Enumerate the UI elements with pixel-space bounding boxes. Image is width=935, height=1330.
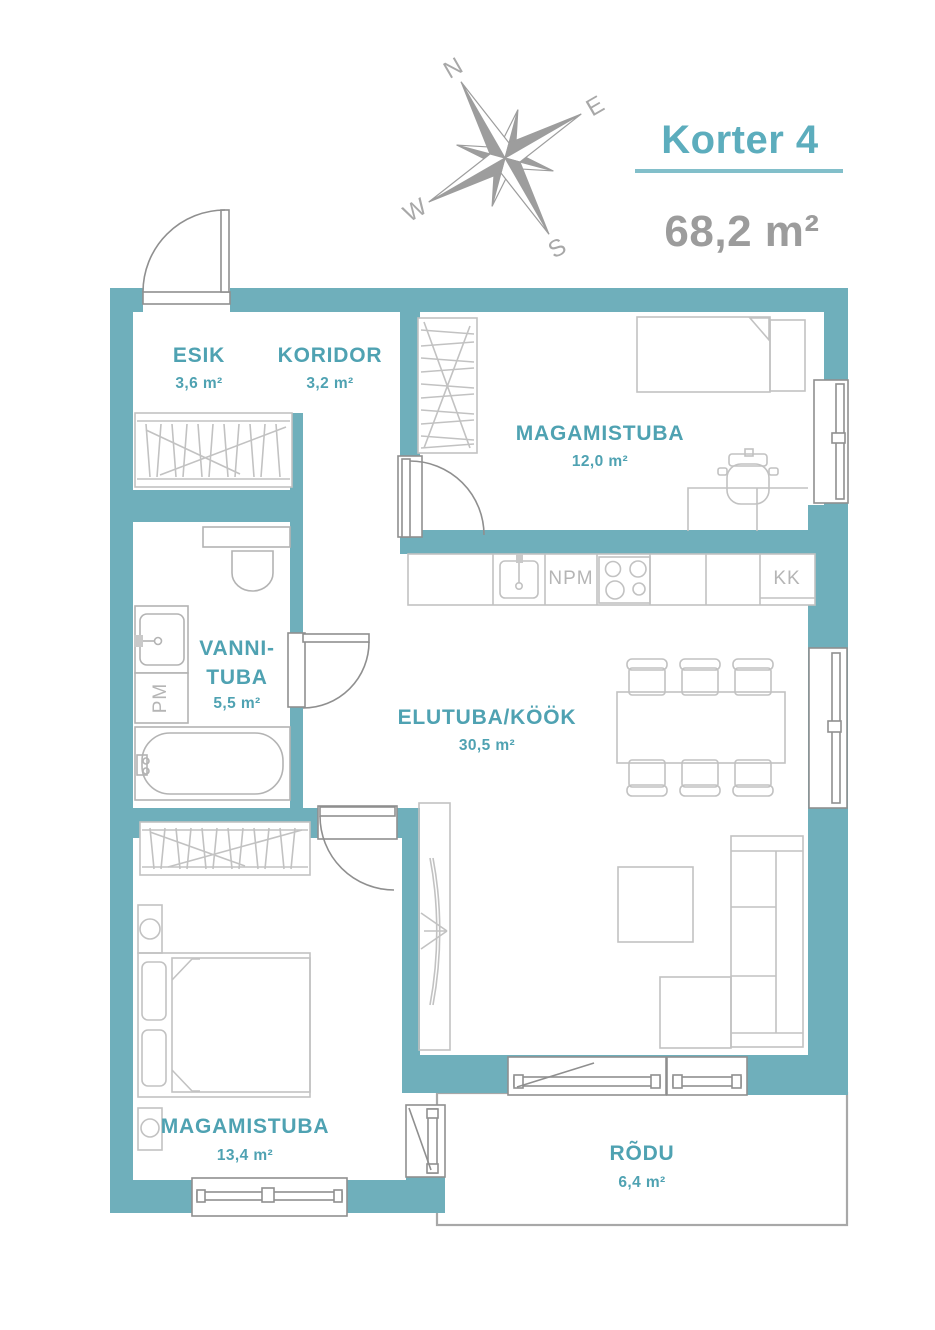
- window-end-cap: [732, 1075, 741, 1088]
- door-gap: [288, 633, 305, 707]
- tv-stand: [421, 913, 447, 949]
- chair-seat: [682, 668, 718, 695]
- hallway-wardrobe-icon: [135, 413, 292, 487]
- bed-mattress: [172, 958, 310, 1092]
- chair-icon: [733, 659, 773, 695]
- compass-label-s: S: [544, 233, 571, 264]
- window-end-cap: [197, 1190, 205, 1202]
- wall-top-main: [230, 288, 848, 312]
- window-living-icon: [809, 648, 847, 808]
- window-latch: [828, 721, 841, 732]
- kitchen-counter: NPM KK: [408, 554, 815, 605]
- toilet-cistern: [203, 527, 290, 547]
- room-area: 3,2 m²: [306, 375, 353, 392]
- dining-chairs: [627, 659, 773, 796]
- sink-tap-base: [134, 635, 143, 647]
- room-area: 6,4 m²: [618, 1174, 665, 1191]
- room-name: ESIK: [173, 344, 225, 367]
- coffee-table-outline: [618, 867, 693, 942]
- toilet-icon: [203, 527, 290, 591]
- chair-icon: [680, 760, 720, 796]
- window-bedroom2-icon: [192, 1178, 347, 1216]
- sofa-cushion-lines: [731, 851, 803, 1033]
- room-area: 30,5 m²: [459, 737, 515, 754]
- total-area: 68,2 m²: [664, 207, 819, 256]
- tv-bench: [419, 803, 450, 1050]
- door-swing-arc: [303, 642, 369, 708]
- single-bed-icon: [637, 317, 805, 392]
- chair-seat: [735, 668, 771, 695]
- bathtub-icon: [135, 727, 290, 800]
- double-bed-icon: [138, 953, 310, 1097]
- bed-pillow: [142, 962, 166, 1020]
- balcony-glazing-left-icon: [508, 1057, 666, 1095]
- header: Korter 4 68,2 m²: [635, 118, 843, 256]
- room-label-koridor: KORIDOR 3,2 m²: [278, 344, 383, 392]
- wall-bedroom1-left-upper: [400, 312, 420, 458]
- room-label-esik: ESIK 3,6 m²: [173, 344, 225, 392]
- room-name: MAGAMISTUBA: [161, 1115, 330, 1138]
- chair-seat: [735, 760, 771, 787]
- bed-fold-corner: [172, 1070, 200, 1091]
- room-name: MAGAMISTUBA: [516, 422, 685, 445]
- chair-armrest: [718, 468, 727, 475]
- dishwasher-label: NPM: [548, 568, 593, 589]
- chair-seat: [727, 464, 769, 504]
- balcony-glazing-right-icon: [667, 1057, 747, 1095]
- bathtub-inner: [142, 733, 283, 794]
- room-area: 3,6 m²: [175, 375, 222, 392]
- wall-left: [110, 288, 133, 1213]
- room-area: 5,5 m²: [213, 695, 260, 712]
- chair-armrest: [769, 468, 778, 475]
- room-name: KORIDOR: [278, 344, 383, 367]
- sofa-chaise: [660, 977, 731, 1048]
- balcony-side-door-icon: [406, 1105, 445, 1177]
- tv-unit-icon: [419, 803, 450, 1050]
- room-area: 13,4 m²: [217, 1147, 273, 1164]
- door-leaf: [303, 634, 369, 642]
- dining-table-icon: [617, 692, 785, 763]
- chair-icon: [627, 659, 667, 695]
- window-frame: [508, 1057, 666, 1095]
- desk-chair-icon: [718, 449, 778, 504]
- bed-headboard: [770, 320, 805, 391]
- chair-icon: [733, 760, 773, 796]
- chair-seat: [629, 668, 665, 695]
- bed-pillow: [142, 1030, 166, 1086]
- window-latch: [262, 1188, 274, 1202]
- apartment-title: Korter 4: [661, 118, 819, 162]
- bed-outline: [138, 953, 310, 1097]
- bathroom-sink-icon: [134, 606, 188, 673]
- room-label-vannituba: VANNI- TUBA 5,5 m²: [199, 637, 275, 712]
- compass-rose-icon: N E S W: [347, 1, 661, 318]
- chair-seat: [629, 760, 665, 787]
- bedroom2-furniture: [138, 822, 310, 1150]
- coffee-table-icon: [618, 867, 693, 942]
- toilet-bowl: [232, 551, 273, 591]
- desk-outline: [688, 488, 808, 531]
- door-swing-arc: [143, 210, 225, 292]
- chair-seat: [682, 760, 718, 787]
- entry-door-icon: [143, 210, 230, 304]
- nightstand-lamp: [141, 1119, 159, 1137]
- room-label-magamistuba1: MAGAMISTUBA 12,0 m²: [516, 422, 685, 470]
- nightstand-lamp: [140, 919, 160, 939]
- wall-bedroom1-left-lower: [400, 535, 420, 554]
- bed-fold-corner: [172, 959, 200, 980]
- bed-outline: [637, 317, 770, 392]
- room-name: RÕDU: [609, 1141, 674, 1165]
- wall-bathroom-right-lower: [290, 707, 303, 808]
- wardrobe-icon: [140, 822, 310, 875]
- bedroom2-door-icon: [318, 806, 397, 890]
- wall-bedroom2-right: [402, 838, 420, 1055]
- nightstand-icon: [138, 905, 162, 953]
- room-area: 12,0 m²: [572, 453, 628, 470]
- wardrobe-icon: [418, 318, 477, 453]
- bathroom-door-icon: [288, 633, 369, 708]
- sofa-outline: [731, 836, 803, 1047]
- door-leaf: [221, 210, 229, 292]
- window-end-cap: [334, 1190, 342, 1202]
- wall-hall-bathroom: [133, 490, 303, 522]
- chair-icon: [680, 659, 720, 695]
- window-end-cap: [673, 1075, 682, 1088]
- desk-icon: [688, 488, 808, 531]
- title-underline: [635, 169, 843, 173]
- table-outline: [617, 692, 785, 763]
- room-name: ELUTUBA/KÖÖK: [398, 706, 577, 729]
- window-sash: [673, 1077, 741, 1086]
- wall-kitchen-divider: [400, 530, 824, 554]
- washing-machine-icon: PM: [135, 673, 188, 723]
- nightstand-outline: [138, 905, 162, 953]
- compass-label-w: W: [399, 193, 432, 228]
- chair-icon: [627, 760, 667, 796]
- window-latch: [832, 433, 845, 443]
- floorplan-page: Korter 4 68,2 m² N E S W: [0, 0, 935, 1330]
- bedroom1-door-icon: [398, 456, 484, 537]
- compass-label-e: E: [582, 91, 609, 122]
- bathroom-fixtures: PM: [134, 527, 290, 800]
- room-label-elutuba: ELUTUBA/KÖÖK 30,5 m²: [398, 706, 577, 754]
- washing-machine-label: PM: [150, 683, 171, 714]
- nightstand-icon: [138, 1108, 162, 1150]
- chair-knob: [745, 449, 753, 456]
- wall-living-southwest: [402, 1055, 508, 1093]
- room-name-line2: TUBA: [206, 666, 268, 689]
- floorplan-canvas: Korter 4 68,2 m² N E S W: [0, 0, 935, 1330]
- room-name-line1: VANNI-: [199, 637, 275, 660]
- wall-bathroom-bedroom2-right: [397, 808, 420, 838]
- compass-label-n: N: [439, 52, 468, 84]
- room-label-magamistuba2: MAGAMISTUBA 13,4 m²: [161, 1115, 330, 1164]
- bed-fold-corner: [750, 318, 769, 340]
- window-end-cap: [651, 1075, 660, 1088]
- window-bedroom1-icon: [814, 380, 848, 503]
- door-end-cap: [427, 1109, 438, 1118]
- wall-bathroom-right-upper: [290, 522, 303, 633]
- fridge-label: KK: [773, 568, 800, 589]
- door-leaf: [320, 807, 395, 816]
- door-leaf: [402, 459, 410, 537]
- door-threshold: [143, 292, 230, 304]
- sink-tap-base: [516, 554, 523, 563]
